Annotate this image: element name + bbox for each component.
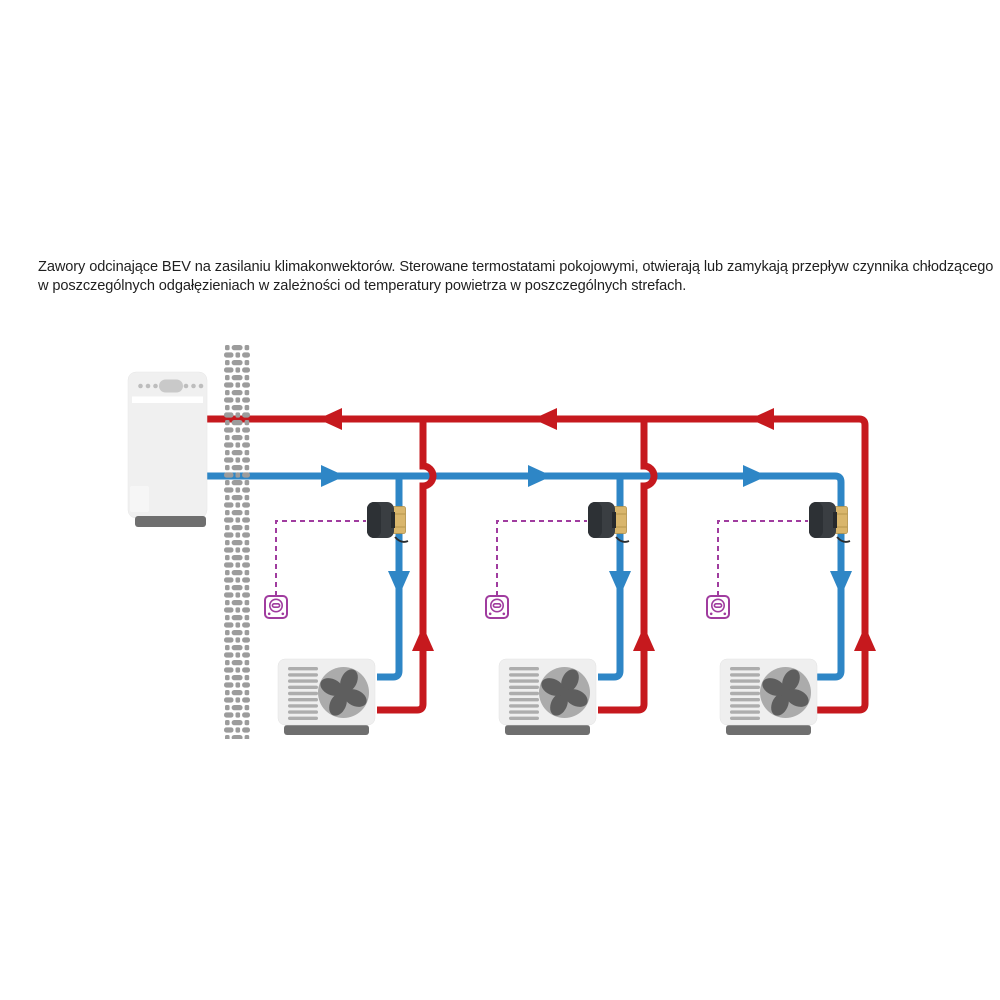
supply-flow-arrow [388, 571, 410, 596]
supply-flow-arrow [609, 571, 631, 596]
room-thermostat [486, 596, 508, 618]
branch-2 [486, 416, 655, 735]
branch-1 [265, 416, 434, 735]
fan-coil-vents [509, 667, 539, 720]
return-flow-arrow [750, 408, 774, 430]
valve-actuator-stem [833, 512, 837, 528]
room-thermostat [265, 596, 287, 618]
diagram-canvas [0, 0, 1000, 1000]
thermostat-screw [489, 613, 492, 616]
thermostat-screw [710, 613, 713, 616]
thermostat-screw [724, 613, 727, 616]
supply-flow-arrow [321, 465, 345, 487]
heat-pump-indicator-dot [153, 384, 158, 389]
thermostat-screw [503, 613, 506, 616]
supply-flow-arrow [528, 465, 552, 487]
heat-pump-indicator-dot [146, 384, 151, 389]
thermostat-screw [268, 613, 271, 616]
fan-coil-unit [720, 659, 817, 735]
control-wire [497, 521, 587, 596]
room-thermostat [707, 596, 729, 618]
fan-coil-unit [499, 659, 596, 735]
return-flow-arrow [854, 626, 876, 651]
heat-pump-indicator-dot [184, 384, 189, 389]
return-flow-arrow [533, 408, 557, 430]
valve-actuator-stem [612, 512, 616, 528]
thermostat-screw [282, 613, 285, 616]
supply-flow-arrow [743, 465, 767, 487]
heat-pump-indicator-dot [138, 384, 143, 389]
heat-pump-base [135, 516, 206, 527]
branch-3 [707, 502, 876, 735]
return-flow-arrow [412, 626, 434, 651]
supply-pipe-header [200, 476, 841, 677]
branch-return-pipe [598, 416, 654, 710]
valve-actuator-face [367, 502, 381, 538]
return-flow-arrow [633, 626, 655, 651]
return-flow-arrow [318, 408, 342, 430]
fan-coil-base [284, 725, 369, 735]
fan-coil-unit [278, 659, 375, 735]
fan-coil-base [726, 725, 811, 735]
valve-actuator-stem [391, 512, 395, 528]
control-wire [718, 521, 808, 596]
heat-pump-display [159, 380, 183, 393]
diagram-page: Zawory odcinające BEV na zasilaniu klima… [0, 0, 1000, 1000]
heat-pump-unit [128, 372, 207, 527]
fan-coil-base [505, 725, 590, 735]
control-wire [276, 521, 366, 596]
valve-actuator-face [588, 502, 602, 538]
fan-coil-vents [288, 667, 318, 720]
branch-return-pipe [377, 416, 433, 710]
fan-coil-vents [730, 667, 760, 720]
heat-pump-indicator-dot [191, 384, 196, 389]
heat-pump-panel [130, 486, 149, 512]
valve-actuator-face [809, 502, 823, 538]
supply-flow-arrow [830, 571, 852, 596]
masonry-wall [224, 344, 250, 739]
heat-pump-stripe [132, 397, 203, 404]
heat-pump-indicator-dot [199, 384, 204, 389]
